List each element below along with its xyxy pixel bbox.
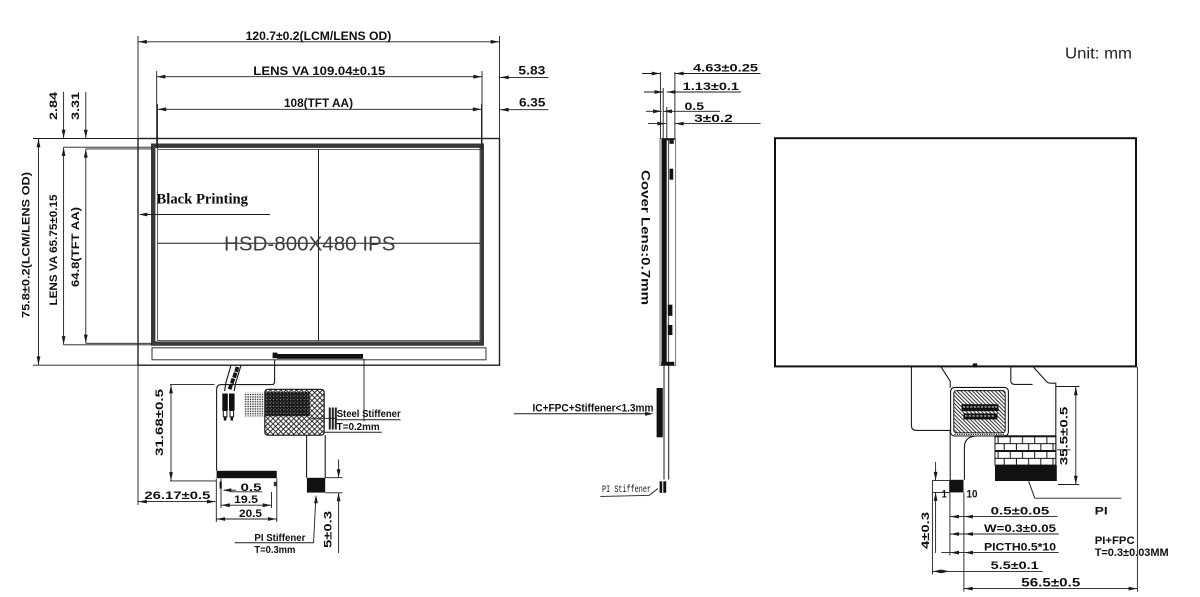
svg-text:IC+FPC+Stiffener<1.3mm: IC+FPC+Stiffener<1.3mm	[533, 402, 654, 414]
svg-text:Cover Lens:0.7mm: Cover Lens:0.7mm	[639, 170, 653, 305]
svg-text:HSD-800X480 IPS: HSD-800X480 IPS	[224, 233, 396, 256]
svg-text:5±0.3: 5±0.3	[323, 511, 335, 548]
svg-text:0.5±0.05: 0.5±0.05	[991, 505, 1050, 517]
svg-text:5.5±0.1: 5.5±0.1	[991, 560, 1040, 572]
svg-text:31.68±0.5: 31.68±0.5	[154, 389, 166, 456]
svg-text:10: 10	[967, 488, 978, 500]
svg-text:108(TFT AA): 108(TFT AA)	[284, 96, 353, 110]
svg-text:Unit: mm: Unit: mm	[1065, 46, 1132, 63]
svg-text:5.83: 5.83	[518, 65, 546, 78]
svg-text:0.5: 0.5	[685, 101, 705, 113]
svg-text:LENS VA 109.04±0.15: LENS VA 109.04±0.15	[253, 64, 385, 78]
svg-text:4.63±0.25: 4.63±0.25	[693, 62, 759, 74]
svg-text:T=0.2mm: T=0.2mm	[337, 422, 380, 433]
svg-text:PI: PI	[1095, 505, 1108, 517]
svg-text:75.8±0.2(LCM/LENS OD): 75.8±0.2(LCM/LENS OD)	[21, 172, 33, 318]
svg-text:T=0.3±0.03MM: T=0.3±0.03MM	[1095, 547, 1169, 559]
svg-text:120.7±0.2(LCM/LENS OD): 120.7±0.2(LCM/LENS OD)	[246, 29, 392, 43]
svg-text:20.5: 20.5	[239, 508, 262, 520]
svg-text:W=0.3±0.05: W=0.3±0.05	[984, 523, 1057, 535]
svg-text:T=0.3mm: T=0.3mm	[254, 545, 295, 556]
svg-text:3±0.2: 3±0.2	[694, 113, 733, 125]
svg-text:Steel Stiffener: Steel Stiffener	[337, 409, 401, 420]
svg-text:1: 1	[942, 488, 948, 500]
svg-text:64.8(TFT AA): 64.8(TFT AA)	[70, 207, 82, 287]
svg-text:6.35: 6.35	[519, 97, 546, 110]
svg-text:19.5: 19.5	[234, 494, 258, 506]
svg-text:Black Printing: Black Printing	[157, 190, 249, 207]
svg-text:2.84: 2.84	[48, 91, 60, 120]
svg-text:1.13±0.1: 1.13±0.1	[683, 81, 740, 93]
svg-text:56.5±0.5: 56.5±0.5	[1021, 575, 1080, 589]
svg-text:4±0.3: 4±0.3	[920, 512, 932, 549]
svg-text:PI Stiffener: PI Stiffener	[602, 484, 651, 496]
svg-text:PI+FPC: PI+FPC	[1095, 535, 1135, 547]
svg-text:35.5±0.5: 35.5±0.5	[1059, 406, 1071, 465]
svg-text:PI Stiffener: PI Stiffener	[254, 533, 305, 544]
svg-text:PICTH0.5*10: PICTH0.5*10	[984, 541, 1056, 553]
svg-text:LENS VA 65.75±0.15: LENS VA 65.75±0.15	[48, 194, 60, 306]
svg-text:3.31: 3.31	[70, 91, 82, 120]
svg-text:26.17±0.5: 26.17±0.5	[144, 490, 210, 502]
